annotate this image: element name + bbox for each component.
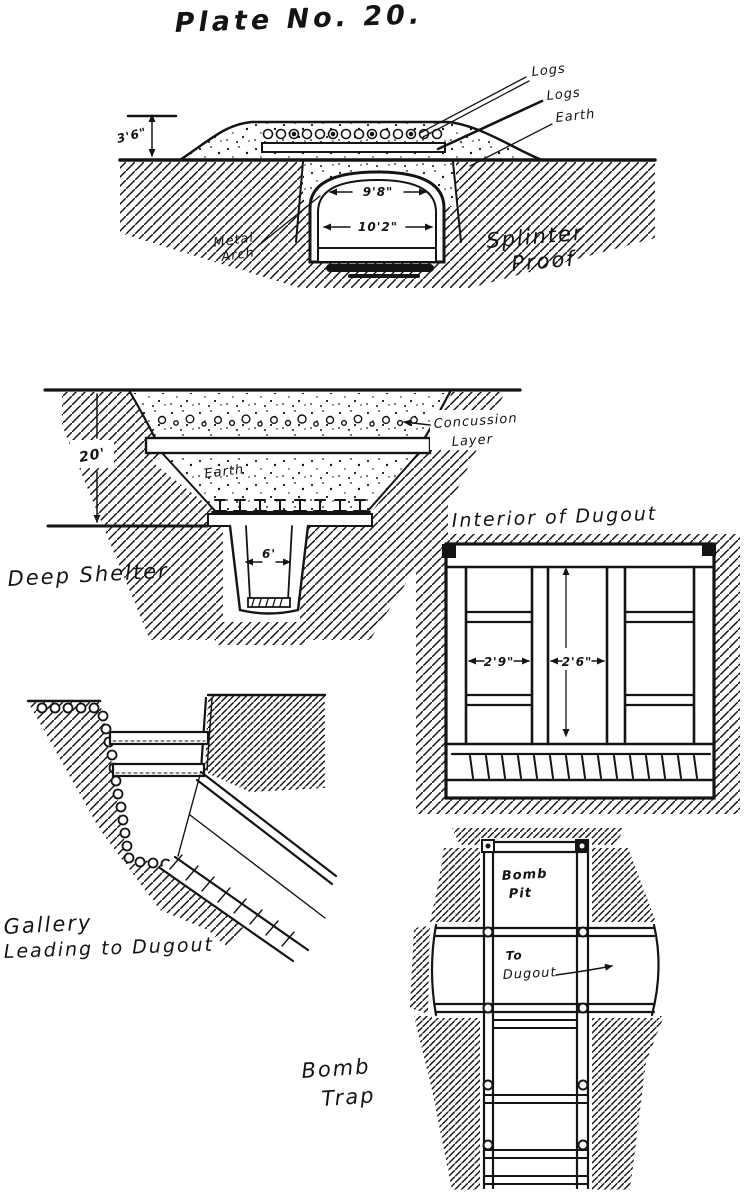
splinter-arch-bottom-dimension: 10'2" bbox=[358, 220, 398, 234]
bomb-pit-label-2: Pit bbox=[508, 886, 532, 902]
deep-shelter-upper-earth bbox=[132, 393, 448, 436]
bomb-trap-diagram: Bomb Pit To Dugout Bomb Trap bbox=[301, 828, 664, 1190]
splinter-proof-caption-2: Proof bbox=[510, 246, 578, 276]
bombtrap-hatch-left-low bbox=[414, 1016, 480, 1190]
splinter-arch-top-dimension: 9'8" bbox=[363, 185, 394, 199]
aisle-width-dimension: 2'6" bbox=[562, 655, 593, 669]
bombtrap-hatch-left-top bbox=[430, 848, 480, 922]
splinter-proof-diagram: 3'6" 9'8" 10'2" Logs Logs Earth Metal Ar… bbox=[115, 61, 655, 288]
deep-shelter-hatch-bottom bbox=[215, 622, 305, 645]
bomb-pit-label-1: Bomb bbox=[501, 867, 547, 884]
splinter-plank bbox=[262, 143, 445, 152]
gallery-diagram: Gallery Leading to Dugout bbox=[3, 695, 336, 963]
splinter-mound bbox=[180, 122, 542, 160]
plate-title: Plate No. 20. bbox=[174, 0, 423, 39]
concussion-plank bbox=[146, 438, 430, 453]
bombtrap-hatch-right-top bbox=[592, 848, 656, 922]
bombtrap-hatch-far-left bbox=[410, 926, 430, 1014]
label-earth: Earth bbox=[555, 107, 596, 126]
gallery-planks bbox=[110, 732, 208, 776]
bomb-trap-caption-2: Trap bbox=[321, 1083, 377, 1111]
to-dugout-label-2: Dugout bbox=[502, 965, 557, 983]
bomb-trap-caption-1: Bomb bbox=[301, 1054, 372, 1083]
gallery-hatch-right bbox=[205, 696, 325, 792]
to-dugout-label-1: To bbox=[505, 948, 523, 963]
bay-width-dimension: 2'9" bbox=[484, 655, 515, 669]
plate-drawing: Plate No. 20. bbox=[0, 0, 750, 1200]
gallery-caption-1: Gallery bbox=[3, 910, 93, 939]
gallery-caption-2: Leading to Dugout bbox=[3, 934, 214, 963]
chamber-width-dimension: 6' bbox=[262, 547, 276, 561]
label-logs-2: Logs bbox=[546, 85, 582, 103]
interior-of-dugout-diagram: Interior of Dugout 2'9" bbox=[416, 502, 744, 814]
label-logs-1: Logs bbox=[531, 61, 567, 79]
splinter-height-dimension: 3'6" bbox=[115, 125, 148, 146]
bombtrap-hatch-right-low bbox=[592, 1016, 664, 1190]
concussion-label-2: Layer bbox=[451, 432, 494, 450]
plate-page: Plate No. 20. bbox=[0, 0, 750, 1200]
